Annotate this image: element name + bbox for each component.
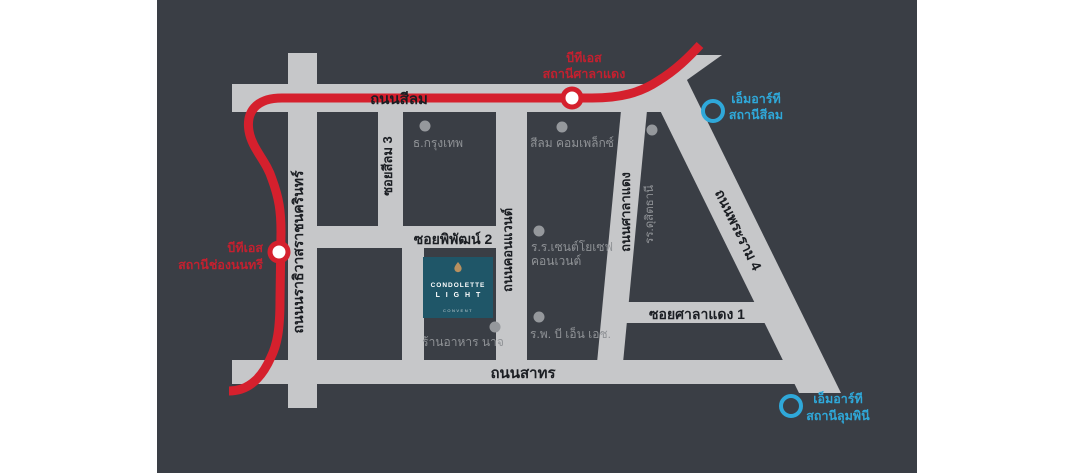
road-label-narathiwat: ถนนนราธิวาสราชนครินทร์ (290, 170, 306, 334)
poi-dot-naj-restaurant (490, 322, 501, 333)
poi-label-bnh-hospital: ร.พ. บี เอ็น เอช. (530, 326, 611, 341)
mrt-lumpini-label-2: สถานีลุมพินี (806, 409, 870, 424)
bts-saladaeng-label-2: สถานีศาลาแดง (543, 67, 626, 81)
poi-label-st-joseph-1: ร.ร.เซนต์โยเซฟ (531, 240, 613, 254)
logo-brand: CONDOLETTE (431, 282, 486, 289)
poi-label-silom-complex: สีลม คอมเพล็กซ์ (530, 135, 614, 150)
mrt-lumpini-label-1: เอ็มอาร์ที (813, 391, 863, 406)
project-logo: CONDOLETTE L I G H T CONVENT (423, 257, 493, 318)
mrt-silom-label-2: สถานีสีลม (729, 108, 783, 122)
road-label-sathorn: ถนนสาทร (490, 365, 556, 382)
logo-name: L I G H T (436, 292, 483, 299)
poi-dot-st-joseph (534, 226, 545, 237)
poi-label-naj-restaurant: ร้านอาหาร นาจ (422, 335, 504, 349)
road-label-soi-silom3: ซอยสีลม 3 (380, 136, 395, 196)
road-label-silom: ถนนสีลม (370, 91, 428, 108)
poi-label-bangkok-bank: ธ.กรุงเทพ (413, 136, 463, 151)
poi-dot-bnh-hospital (534, 312, 545, 323)
map-background (157, 0, 917, 473)
poi-dot-bangkok-bank (420, 121, 431, 132)
road-label-convent: ถนนคอนแวนต์ (500, 208, 515, 292)
map-canvas: ถนนสีลม ถนนสาทร ซอยพิพัฒน์ 2 ซอยศาลาแดง … (0, 0, 1075, 473)
road-label-saladaeng: ถนนศาลาแดง (618, 172, 633, 252)
bts-station-marker-chongnonsi (270, 243, 288, 261)
logo-sub: CONVENT (443, 308, 473, 313)
poi-dot-silom-complex (557, 122, 568, 133)
bts-station-marker-saladaeng (563, 89, 581, 107)
road-label-soi-saladaeng1: ซอยศาลาแดง 1 (649, 306, 745, 322)
road-label-soi-pipat2: ซอยพิพัฒน์ 2 (414, 231, 493, 247)
bts-saladaeng-label-1: บีทีเอส (566, 51, 602, 65)
poi-dot-dusit-thani (647, 125, 658, 136)
bts-chongnonsi-label-2: สถานีช่องนนทรี (178, 258, 263, 272)
poi-label-st-joseph-2: คอนเวนต์ (531, 254, 581, 268)
bts-chongnonsi-label-1: บีทีเอส (227, 241, 263, 255)
poi-label-dusit-thani: รร.ดุสิตธานี (643, 185, 656, 244)
location-map: ถนนสีลม ถนนสาทร ซอยพิพัฒน์ 2 ซอยศาลาแดง … (0, 0, 1075, 473)
mrt-silom-label-1: เอ็มอาร์ที (731, 91, 781, 106)
